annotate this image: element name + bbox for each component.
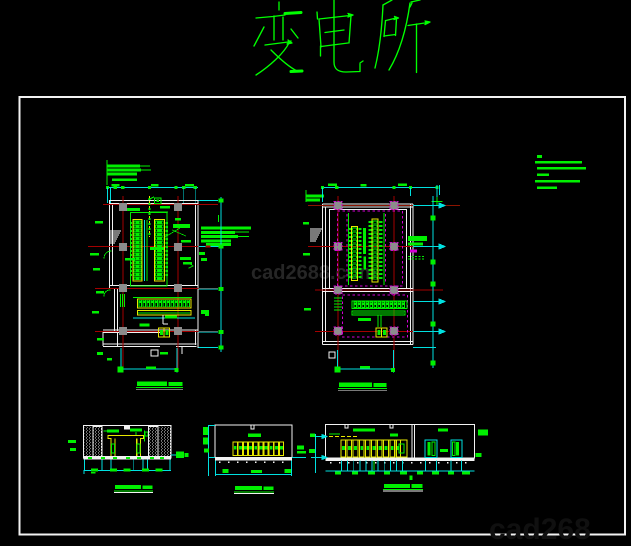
svg-text:cad268: cad268	[489, 513, 591, 546]
